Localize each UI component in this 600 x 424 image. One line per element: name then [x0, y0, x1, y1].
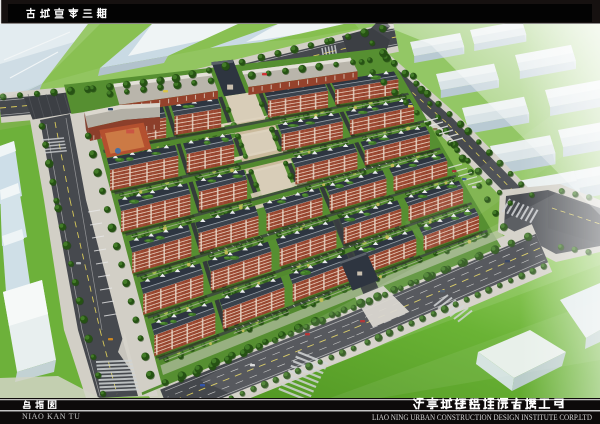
svg-text:NIAO KAN TU: NIAO KAN TU: [22, 412, 80, 421]
svg-text:LIAO NING URBAN CONSTRUCTION D: LIAO NING URBAN CONSTRUCTION DESIGN INST…: [372, 413, 592, 422]
